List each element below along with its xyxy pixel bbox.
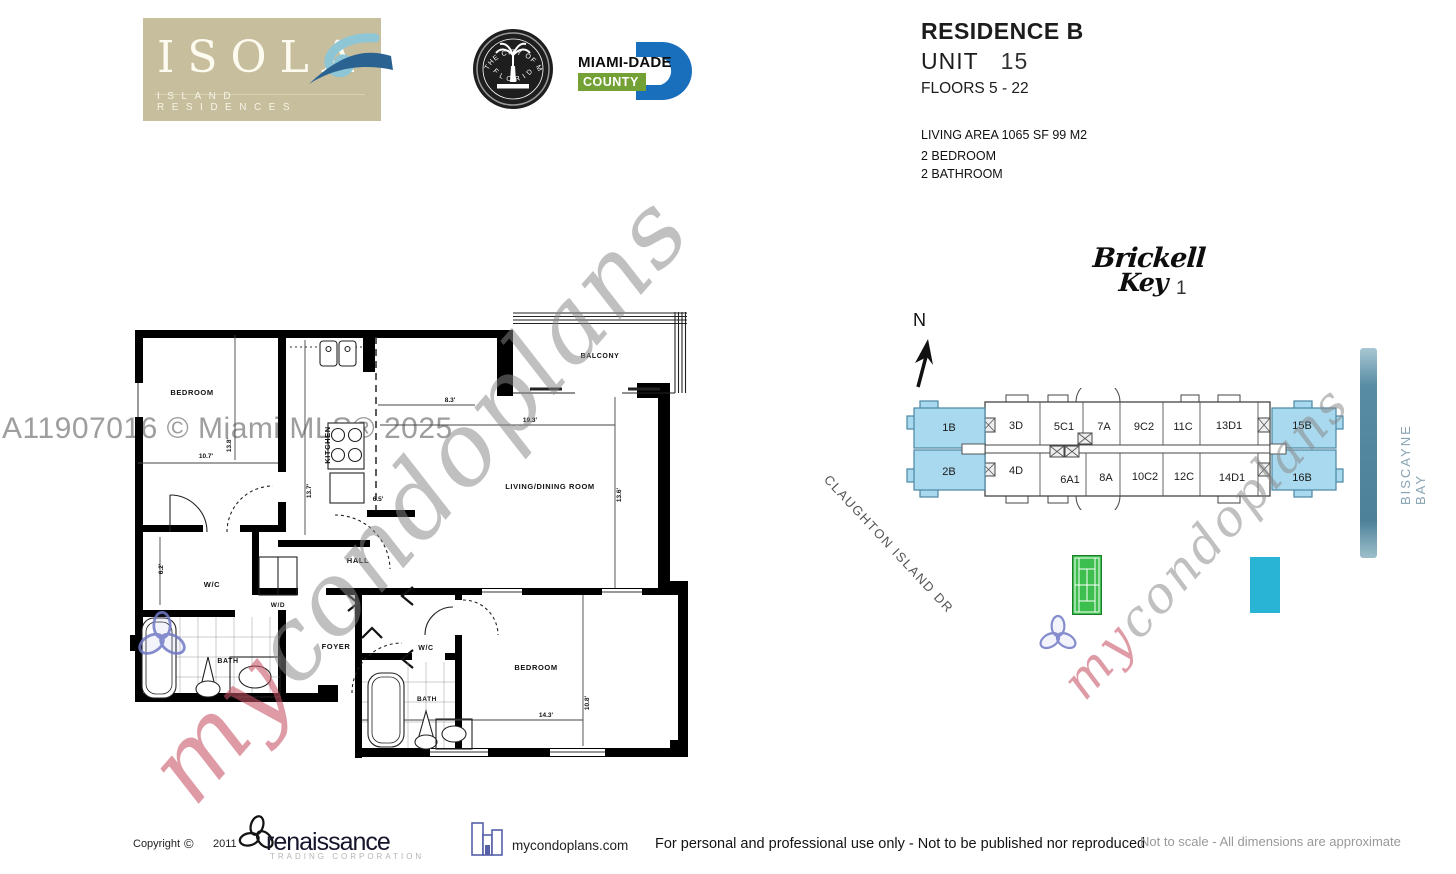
unit-13D1: 13D1	[1216, 420, 1242, 432]
unit-label: UNIT	[921, 48, 979, 74]
wc2-label: W/C	[418, 645, 433, 652]
unit-2B: 2B	[942, 466, 955, 478]
copyright-label: Copyright	[133, 838, 180, 850]
wc1-label: W/C	[204, 580, 220, 589]
floors-line: FLOORS 5 - 22	[921, 80, 1029, 98]
unit-number: 15	[1001, 48, 1029, 74]
tennis-court-icon	[1072, 555, 1102, 615]
bedroom2-label: BEDROOM	[514, 663, 557, 672]
living-label: LIVING/DINING ROOM	[505, 482, 595, 491]
pool-icon	[1250, 557, 1280, 613]
mycondoplans-url: mycondoplans.com	[512, 838, 628, 853]
north-label: N	[913, 310, 941, 331]
bedroom1-label: BEDROOM	[170, 388, 213, 397]
unit-6A1: 6A1	[1060, 474, 1080, 486]
dim-wc1-h: 6.2'	[158, 563, 165, 574]
dim-bed1-w: 10.7'	[199, 453, 214, 460]
seal-banner	[497, 84, 529, 89]
renaissance-subtitle: TRADING CORPORATION	[270, 852, 424, 861]
brickell-number: 1	[1176, 278, 1187, 300]
north-arrow: N	[905, 310, 941, 396]
mdc-wordmark: MIAMI-DADE	[578, 54, 672, 71]
dim-living-h: 13.6'	[616, 487, 623, 502]
bathroom-count: 2 BATHROOM	[921, 167, 1003, 181]
unit-line: UNIT15	[921, 48, 1028, 75]
unit-9C2: 9C2	[1134, 421, 1154, 433]
entry-arc-top	[1076, 388, 1120, 402]
miami-dade-logo: MIAMI-DADE COUNTY	[578, 40, 693, 102]
copyright-symbol: ©	[184, 836, 194, 851]
mdc-county-badge: COUNTY	[578, 73, 646, 91]
scale-disclaimer: Not to scale - All dimensions are approx…	[1140, 834, 1401, 849]
corridor-west-gap	[962, 444, 985, 454]
bay-label: BISCAYNE BAY	[1398, 400, 1428, 505]
north-arrow-icon	[905, 331, 941, 391]
usage-notice: For personal and professional use only -…	[655, 836, 1145, 852]
unit-10C2: 10C2	[1132, 471, 1158, 483]
city-of-miami-seal: THE CITY OF MIAMI FLORIDA	[471, 26, 555, 112]
unit-8A: 8A	[1099, 472, 1113, 484]
bedroom-count: 2 BEDROOM	[921, 149, 996, 163]
isola-subtitle: ISLAND RESIDENCES	[157, 91, 381, 113]
watermark-flower-icon	[136, 610, 188, 666]
bath2-label: BATH	[417, 696, 437, 703]
residence-title: RESIDENCE B	[921, 18, 1084, 45]
bay-shoreline	[1360, 348, 1377, 558]
isola-logo: ISOLA ISLAND RESIDENCES	[143, 18, 381, 121]
unit-12C: 12C	[1174, 471, 1194, 483]
unit-7A: 7A	[1097, 421, 1111, 433]
entry-arc-bottom	[1076, 496, 1120, 510]
unit-4D: 4D	[1009, 465, 1023, 477]
mdc-d-icon	[630, 40, 694, 102]
watermark-flower-icon-small	[1038, 614, 1078, 658]
unit-5C1: 5C1	[1054, 421, 1074, 433]
dim-bed1-h: 13.8'	[226, 437, 233, 452]
kitchen-label: KITCHEN	[323, 426, 332, 464]
floorplan-sheet: ISOLA ISLAND RESIDENCES THE CITY OF MIAM…	[0, 0, 1456, 874]
dim-kitchen-h: 13.7'	[306, 483, 313, 498]
dim-bed2-w: 14.3'	[539, 712, 554, 719]
unit-11C: 11C	[1173, 421, 1192, 433]
unit-1B: 1B	[942, 422, 955, 434]
living-area: LIVING AREA 1065 SF 99 M2	[921, 128, 1087, 142]
unit-3D: 3D	[1009, 420, 1023, 432]
mycondoplans-buildings-icon	[470, 820, 506, 858]
wave-icon	[279, 26, 409, 96]
dim-bed2-h: 10.8'	[584, 695, 591, 710]
copyright-year: 2011	[213, 838, 237, 850]
